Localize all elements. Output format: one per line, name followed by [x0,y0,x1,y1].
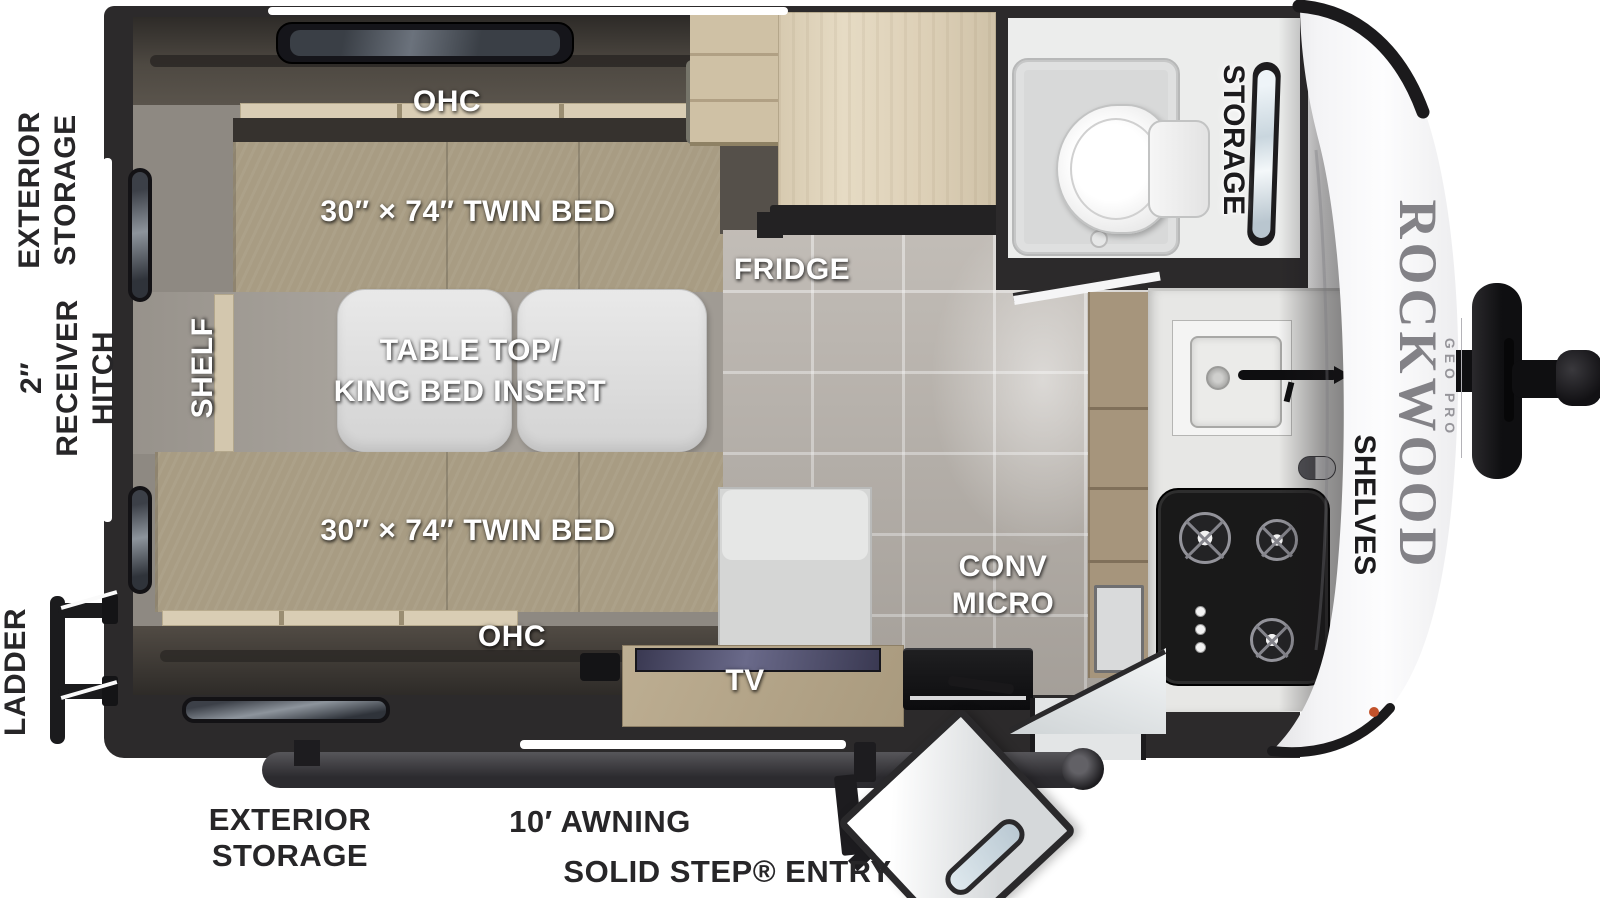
awning-end-cap [1062,748,1104,790]
bottom-wall-accent-strip [520,740,846,749]
cooktop-knob [1195,642,1206,653]
entry-door-window [940,813,1031,898]
exterior-storage-bottom-label: EXTERIOR STORAGE [187,802,393,874]
awning-label: 10′ AWNING [490,804,710,840]
pantry-divider [1088,407,1148,410]
toilet-lid-hinge [1148,120,1210,218]
rear-wall-window-lower [128,486,152,594]
cooktop-burner-large [1179,512,1231,564]
hitch-coupler-knob [1556,350,1600,406]
fridge-label: FRIDGE [712,252,872,290]
rear-wall-window-upper [128,168,152,302]
ladder-label: LADDER [0,592,34,752]
pantry-appliance-door [1094,585,1144,673]
wardrobe-counter-top [722,490,868,560]
clearance-light [1369,707,1379,717]
exterior-storage-rear-label: EXTERIOR STORAGE [12,105,84,275]
geo-pro-logo: GEO PRO [1440,318,1462,458]
tv-mount-bracket [580,653,620,681]
fridge-wood-grain [778,12,996,210]
awning-mount [854,742,876,782]
microwave-handle [910,696,1026,700]
awning-mount [294,740,320,766]
rear-ladder-rail [50,596,65,744]
cooktop-knob [1195,624,1206,635]
floorplan-canvas: OHC 30″ × 74″ TWIN BED TABLE TOP/ KING B… [0,0,1600,898]
fridge-base-trim [770,205,1002,235]
top-wall-accent-strip [268,7,788,15]
tv-label: TV [715,663,775,699]
ohc-bottom-label: OHC [462,619,562,655]
shelves-label: SHELVES [1347,420,1381,590]
pantry-divider [1088,560,1148,563]
pantry-divider [1088,487,1148,490]
bed-head-shadow [233,118,723,144]
ladder-mount-plate [102,594,118,624]
receiver-hitch-label: 2″ RECEIVER HITCH [14,281,86,475]
bottom-wall-window [182,697,390,723]
twin-bed-top-label: 30″ × 74″ TWIN BED [268,194,668,230]
front-wall-window-glass [290,30,560,56]
fridge-base-step [757,212,783,238]
twin-bed-bottom-label: 30″ × 74″ TWIN BED [268,513,668,549]
front-cap-shadow-overlay [1240,17,1350,711]
sink-drain [1206,366,1230,390]
bath-storage-label: STORAGE [1216,45,1250,235]
conv-micro-label: CONV MICRO [923,548,1083,624]
ohc-top-label: OHC [397,84,497,120]
solid-step-entry-label: SOLID STEP® ENTRY [555,854,900,890]
cooktop-knob [1195,606,1206,617]
table-king-bed-label: TABLE TOP/ KING BED INSERT [320,330,620,414]
wardrobe-cabinet-top [690,12,778,146]
shelf-label: SHELF [185,303,219,433]
